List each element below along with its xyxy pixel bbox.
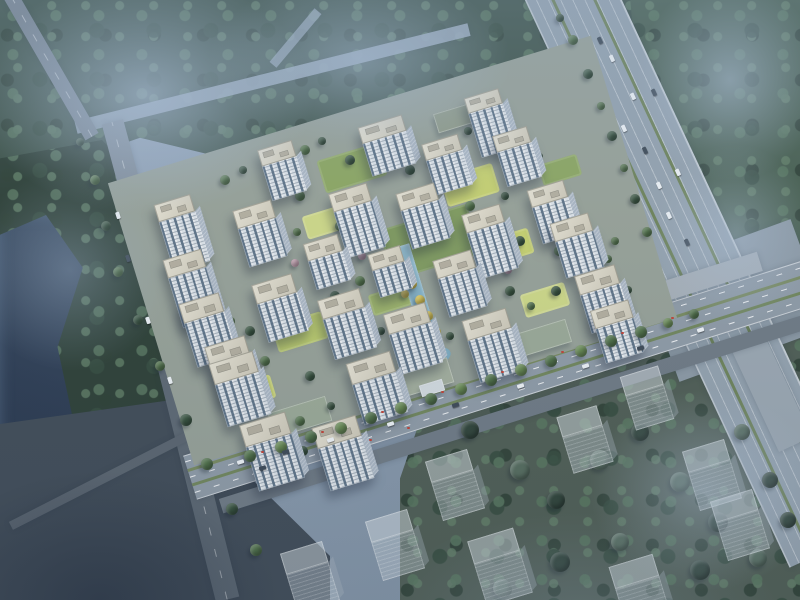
roof-unit: [486, 215, 496, 223]
street-tree: [365, 412, 377, 424]
roof-unit: [263, 149, 274, 157]
street-tree: [244, 450, 256, 462]
street-tree: [226, 503, 238, 515]
tree: [260, 356, 270, 366]
roof-unit: [615, 310, 625, 318]
roof-unit: [237, 364, 248, 373]
tree: [510, 460, 530, 480]
street-tree: [155, 361, 165, 371]
tree: [690, 560, 710, 580]
street-tree: [133, 315, 143, 325]
street-tree: [180, 414, 192, 426]
street-tree: [101, 221, 111, 231]
roof-unit: [374, 364, 385, 373]
storefront-accent: [261, 451, 264, 453]
street-tree: [515, 364, 527, 376]
tree: [345, 155, 355, 165]
tree: [464, 127, 472, 135]
roof-unit: [410, 314, 421, 322]
roof-unit: [457, 260, 467, 268]
roof-unit: [353, 194, 363, 202]
roof-unit: [169, 259, 181, 268]
roof-unit: [402, 193, 414, 201]
street-tree: [545, 355, 557, 367]
roof-unit: [373, 254, 384, 262]
aerial-architectural-rendering: [0, 0, 800, 600]
roof-unit: [470, 97, 481, 105]
tree: [734, 424, 750, 440]
storefront-accent: [561, 351, 564, 353]
roof-unit: [279, 150, 288, 157]
street-tree: [663, 318, 673, 328]
roof-unit: [277, 285, 287, 293]
roof-unit: [574, 223, 584, 231]
tree: [305, 371, 315, 381]
tree: [239, 166, 247, 174]
roof-unit: [445, 143, 454, 150]
street-tree: [635, 326, 647, 338]
roof-unit: [186, 304, 199, 313]
street-tree: [642, 227, 652, 237]
roof-unit: [533, 190, 545, 198]
roof-unit: [160, 204, 172, 212]
roof-unit: [490, 320, 501, 329]
roof-unit: [216, 363, 230, 373]
tree: [220, 175, 230, 185]
street-tree: [620, 164, 628, 172]
roof-unit: [390, 313, 404, 323]
tree: [780, 512, 796, 528]
roof-unit: [269, 425, 281, 434]
street-tree: [90, 175, 100, 185]
roof-unit: [420, 193, 430, 200]
street-tree: [455, 383, 467, 395]
street-tree: [113, 267, 123, 277]
roof-unit: [514, 136, 523, 143]
tree: [611, 533, 629, 551]
tree: [550, 552, 570, 572]
storefront-accent: [381, 411, 384, 413]
street-tree: [201, 458, 213, 470]
roof-unit: [498, 135, 509, 143]
storefront-accent: [671, 317, 674, 319]
tree: [355, 276, 365, 286]
street-tree: [568, 35, 578, 45]
roof-unit: [335, 193, 347, 202]
storefront-accent: [621, 332, 624, 334]
roof-unit: [324, 299, 338, 308]
street-tree: [250, 544, 262, 556]
street-tree: [689, 309, 699, 319]
tree: [547, 491, 565, 509]
roof-unit: [600, 276, 610, 284]
roof-unit: [211, 346, 224, 355]
street-tree: [485, 374, 497, 386]
tree: [461, 421, 479, 439]
roof-unit: [258, 284, 271, 293]
roof-unit: [468, 214, 480, 223]
blossom-tree: [291, 259, 299, 267]
tree: [446, 332, 454, 340]
roof-unit: [257, 210, 267, 218]
tree: [551, 286, 561, 296]
tree: [762, 472, 778, 488]
storefront-accent: [407, 427, 410, 429]
tree: [327, 402, 335, 410]
tree: [527, 302, 535, 310]
roof-unit: [386, 125, 397, 132]
roof-unit: [247, 424, 262, 435]
roof-unit: [309, 244, 320, 252]
street-tree: [425, 393, 437, 405]
storefront-accent: [369, 439, 372, 441]
tree: [295, 416, 305, 426]
street-tree: [605, 335, 617, 347]
street-tree: [575, 345, 587, 357]
street-tree: [76, 138, 84, 146]
roof-unit: [556, 223, 568, 232]
tree: [670, 472, 690, 492]
tree: [611, 237, 619, 245]
tree: [293, 228, 301, 236]
street-tree: [335, 422, 347, 434]
roof-unit: [354, 363, 368, 373]
street-tree: [395, 402, 407, 414]
roof-unit: [550, 190, 559, 197]
tree: [465, 201, 475, 211]
roof-unit: [239, 210, 251, 219]
street-tree: [607, 131, 617, 141]
roof-unit: [389, 255, 398, 262]
tree: [505, 286, 515, 296]
storefront-accent: [321, 431, 324, 433]
tree: [318, 137, 326, 145]
roof-unit: [187, 260, 197, 268]
street-tree: [556, 14, 564, 22]
tree: [501, 192, 509, 200]
street-tree: [583, 69, 593, 79]
roof-unit: [204, 304, 214, 312]
tree: [405, 165, 415, 175]
street-tree: [597, 102, 605, 110]
roof-unit: [581, 275, 594, 284]
roof-unit: [177, 205, 186, 212]
roof-unit: [486, 98, 495, 105]
storefront-accent: [441, 391, 444, 393]
roof-unit: [439, 260, 451, 269]
storefront-accent: [501, 371, 504, 373]
street-tree: [630, 194, 640, 204]
roof-unit: [325, 245, 334, 252]
roof-unit: [428, 143, 440, 151]
roof-unit: [597, 310, 609, 319]
roof-unit: [469, 319, 483, 329]
tree: [245, 326, 255, 336]
roof-unit: [344, 300, 355, 308]
street-tree: [305, 431, 317, 443]
roof-unit: [365, 125, 379, 134]
